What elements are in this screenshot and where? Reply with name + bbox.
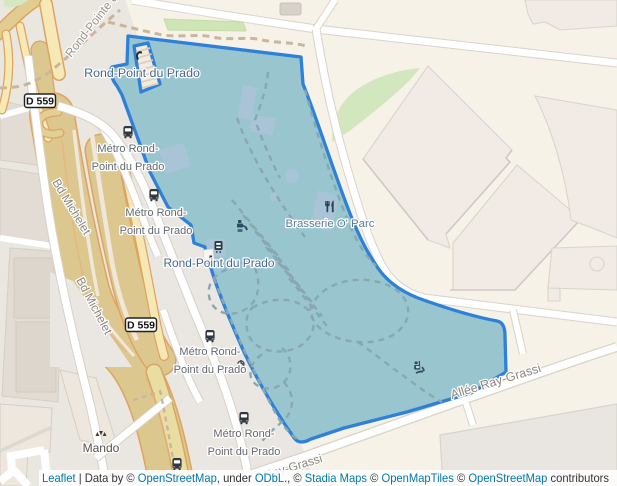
svg-text:Métro Rond-: Métro Rond-	[97, 143, 158, 155]
svg-text:Point du Prado: Point du Prado	[92, 161, 165, 173]
svg-text:Point du Prado: Point du Prado	[208, 446, 281, 458]
svg-text:Point du Prado: Point du Prado	[174, 364, 247, 376]
svg-text:Rond-Point du Prado: Rond-Point du Prado	[84, 66, 200, 80]
svg-text:Métro Rond-: Métro Rond-	[179, 346, 240, 358]
svg-text:Rond-Point du Prado: Rond-Point du Prado	[163, 256, 274, 270]
svg-text:D 559: D 559	[127, 320, 155, 332]
svg-text:Métro Rond-: Métro Rond-	[125, 207, 186, 219]
svg-text:Brasserie O' Parc: Brasserie O' Parc	[286, 218, 375, 230]
svg-text:D 559: D 559	[26, 96, 54, 108]
svg-text:Métro Rond-: Métro Rond-	[213, 428, 274, 440]
svg-text:Mando: Mando	[83, 441, 120, 455]
svg-text:Leaflet | Data by © OpenStreet: Leaflet | Data by © OpenStreetMap, under…	[42, 471, 609, 485]
svg-text:Point du Prado: Point du Prado	[120, 225, 193, 237]
